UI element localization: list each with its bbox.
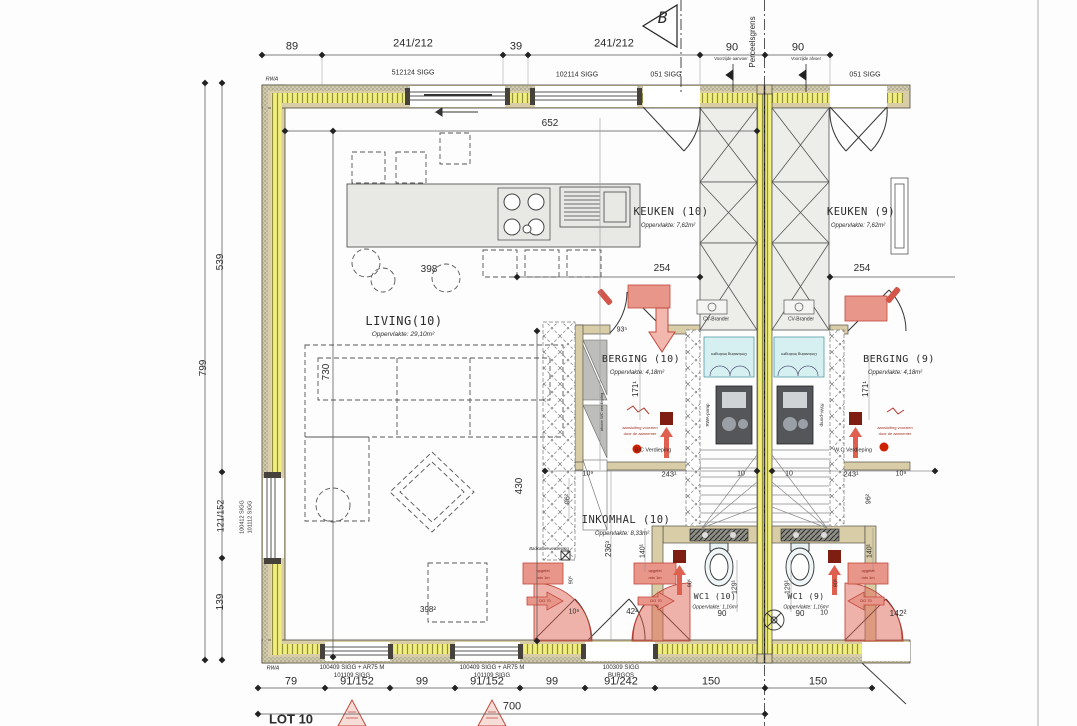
dim-96-right: 96² — [866, 494, 873, 504]
dim-140-right: 140¹ — [867, 544, 874, 558]
dim-bot-99b: 99 — [546, 677, 558, 688]
dim-799: 799 — [199, 360, 209, 377]
dim-top-90b: 90 — [792, 43, 804, 54]
dim-bot-79: 79 — [285, 677, 297, 688]
bc-verdieping-note: B/C Verdieping — [635, 448, 672, 454]
note-berging-left-1: aansluiting voorzien — [622, 426, 657, 430]
dim-398-bottom: 398² — [420, 606, 436, 614]
dim-109-a: 10⁹ — [583, 471, 594, 478]
labels-layer: 89241/21239241/2129090512124 SIGG102114 … — [0, 0, 1077, 726]
note-berging-left-2: door de aannemer — [624, 432, 657, 436]
room-wc10: WC1 (10) — [694, 593, 737, 601]
dim-bot-99a: 99 — [416, 677, 428, 688]
door-note-a1: opgelet — [536, 569, 549, 573]
dim-bot-91b: 91/152 — [470, 677, 504, 688]
dim-top-39: 39 — [510, 42, 522, 53]
flag-voorzijde-afvoer: Voorzijde afvoer — [791, 57, 821, 61]
dim-730: 730 — [322, 364, 332, 381]
dim-42: 42² — [626, 608, 638, 616]
note-badkamer: Badkamer verdieping — [529, 547, 569, 551]
door-note-c2: min 1m — [861, 576, 874, 580]
dim-93-5: 93⁵ — [617, 327, 628, 334]
dim-243-right: 243¹ — [843, 470, 858, 478]
dim-539: 539 — [216, 254, 226, 271]
rwa-bottom-label: RWA — [267, 666, 280, 672]
door-note-b2: min 1m — [648, 576, 661, 580]
room-inkomhal: INKOMHAL (10) — [582, 515, 671, 526]
rwa-pomp-right: RWA-pomp — [819, 403, 824, 426]
door-arrow-a: DO 70 — [539, 599, 551, 603]
room-keuken9: KEUKEN (9) — [827, 207, 895, 218]
window-label-512124: 512124 SIGG — [392, 70, 435, 77]
dim-90-right: 90 — [796, 610, 805, 618]
dim-905-c: 90⁵ — [834, 579, 840, 587]
room-berging10: BERGING (10) — [602, 355, 680, 365]
floorplan-canvas: 89241/21239241/2129090512124 SIGG102114 … — [0, 0, 1077, 726]
dim-10-right: 10 — [785, 471, 793, 478]
dim-398-top: 398 — [421, 265, 438, 275]
dim-430: 430 — [515, 478, 525, 495]
dim-109-b: 10⁹ — [569, 609, 580, 616]
dim-700: 700 — [503, 702, 521, 713]
area-inkomhal: Oppervlakte: 8,33m² — [595, 531, 649, 537]
dim-254-left: 254 — [654, 264, 671, 274]
door-note-c1: opgelet — [861, 569, 874, 573]
window-label-101112: 101112 SIGG — [248, 501, 254, 534]
door-note-b1: opgelet — [648, 569, 661, 573]
dim-905-b: 90⁵ — [688, 579, 694, 587]
door-arrow-b: DO 70 — [650, 599, 662, 603]
dim-652: 652 — [542, 119, 559, 129]
dim-top-241b: 241/212 — [594, 39, 634, 50]
dim-10-left: 10 — [737, 471, 745, 478]
area-wc10: Oppervlakte: 1,16m² — [692, 606, 737, 611]
door-note-a2: min 1m — [536, 576, 549, 580]
dim-254-right: 254 — [854, 264, 871, 274]
dim-171-left: 171¹ — [632, 381, 640, 397]
dim-905-a: 90⁵ — [569, 576, 575, 584]
dim-139: 139 — [216, 594, 226, 611]
flag-voorzijde-aanvoer: Voorzijde aanvoer — [714, 57, 748, 61]
wc-verdieping-note: W.C Verdieping — [834, 448, 872, 454]
dim-121-152: 121/152 — [217, 500, 226, 533]
dim-top-90a: 90 — [726, 43, 738, 54]
dim-129-left: 129¹ — [732, 580, 739, 594]
bottom-window-a1: 100409 SIGG + AR75 M — [320, 665, 385, 671]
dim-96-left: 96² — [565, 494, 572, 504]
room-keuken10: KEUKEN (10) — [633, 207, 708, 218]
room-living: LIVING(10) — [365, 315, 442, 327]
bottom-door-c1: 100309 SIGG — [603, 665, 640, 671]
dim-140-left: 140¹ — [640, 544, 647, 558]
dim-bot-150a: 150 — [702, 677, 720, 688]
dim-129-right: 129¹ — [785, 580, 792, 594]
note-berging-right-1: aansluiting voorzien — [877, 426, 912, 430]
stair-landing-note-left: Omkasting leidingen — [711, 352, 747, 356]
room-berging9: BERGING (9) — [863, 355, 935, 365]
dim-10-wc: 10 — [820, 610, 828, 617]
dim-top-241a: 241/212 — [393, 39, 433, 50]
cv-brander-right: CV-Brander — [788, 318, 814, 323]
dim-bot-91a: 91/152 — [340, 677, 374, 688]
window-label-051b: 051 SIGG — [849, 72, 880, 79]
area-berging9: Oppervlakte: 4,18m² — [868, 370, 922, 376]
dim-171-right: 171¹ — [862, 381, 870, 397]
area-berging10: Oppervlakte: 4,18m² — [610, 370, 664, 376]
window-label-100412: 100412 SIGG — [240, 500, 246, 534]
dim-236: 236³ — [605, 541, 613, 557]
window-label-102114: 102114 SIGG — [556, 72, 598, 79]
dim-109-right: 10⁹ — [896, 471, 907, 478]
rwa-top-label: RWA — [266, 77, 279, 83]
stair-landing-note-right: Omkasting leidingen — [781, 352, 817, 356]
dim-90-left: 90 — [718, 610, 727, 618]
dim-top-89: 89 — [286, 42, 298, 53]
dim-142: 142² — [889, 609, 906, 618]
window-label-051a: 051 SIGG — [650, 72, 681, 79]
area-living: Oppervlakte: 29,10m² — [372, 332, 435, 339]
note-berging-right-2: door de aannemer — [879, 432, 912, 436]
cv-brander-left: CV-Brander — [703, 318, 729, 323]
bottom-window-b1: 100409 SIGG + AR75 M — [460, 665, 525, 671]
area-keuken10: Oppervlakte: 7,62m² — [641, 223, 695, 229]
dim-bot-150b: 150 — [809, 677, 827, 688]
section-marker-b: B — [658, 10, 668, 26]
rwa-pomp-left: RWA-pomp — [706, 403, 711, 426]
perceelsgrens-label: Perceelsgrens — [749, 16, 757, 67]
dim-243-left: 243¹ — [661, 470, 676, 478]
afvoer-vert-note: afvoer WC verdieping — [600, 393, 604, 431]
area-keuken9: Oppervlakte: 7,62m² — [831, 223, 885, 229]
lot-10-label: LOT 10 — [269, 713, 313, 726]
dim-bot-91242: 91/242 — [604, 677, 638, 688]
room-wc9: WC1 (9) — [787, 593, 824, 601]
door-arrow-c: DO 70 — [860, 599, 872, 603]
